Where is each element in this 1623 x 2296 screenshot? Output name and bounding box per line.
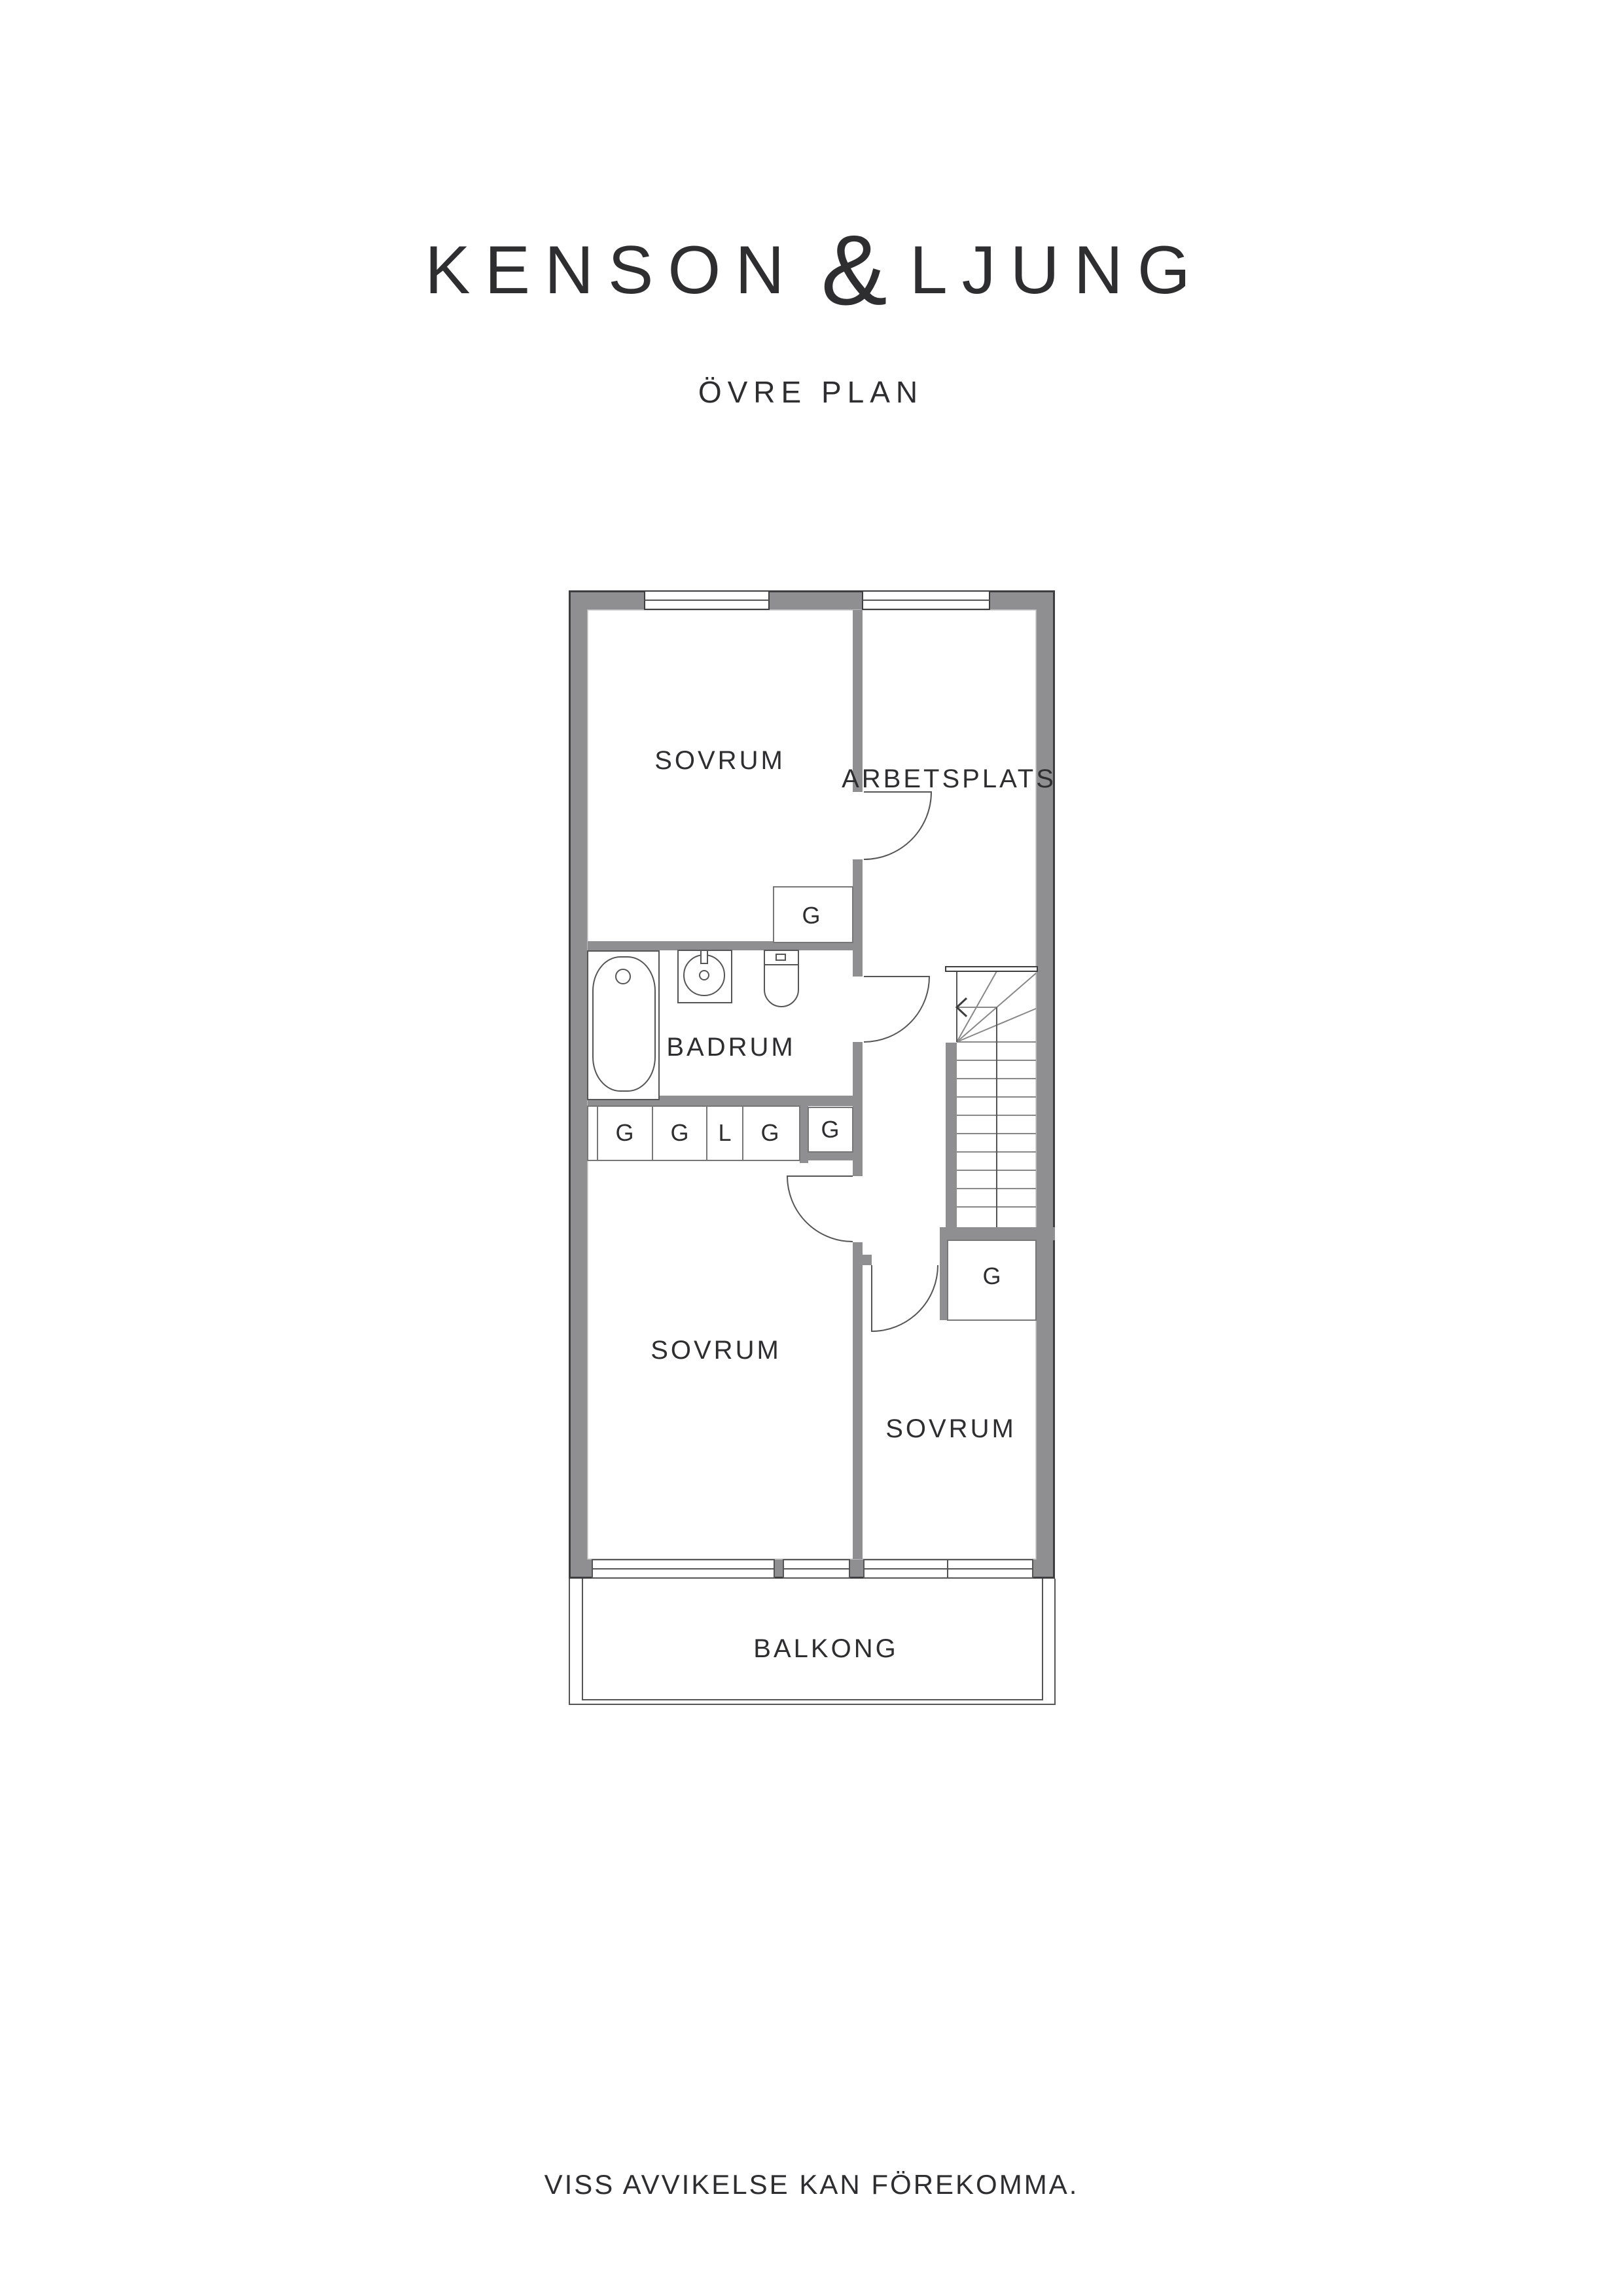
closet-label-row-3: L [718, 1121, 732, 1145]
closet-label-under-stairs: G [982, 1265, 1001, 1288]
door-sovrum-left [787, 1176, 853, 1242]
plan-subtitle: ÖVRE PLAN [698, 377, 923, 407]
door-arbetsplats [864, 792, 931, 859]
closet-label-row-2: G [670, 1121, 689, 1145]
room-label-balkong: BALKONG [753, 1636, 898, 1662]
room-label-arbetsplats: ARBETSPLATS [842, 766, 1056, 792]
bathroom-fixtures [588, 950, 798, 1100]
toilet [764, 950, 798, 1007]
balcony-doors-windows [592, 1560, 1033, 1578]
closet-label-row-1: G [615, 1121, 634, 1145]
floorplan-page: KENSON & LJUNG ÖVRE PLAN SOVRUM ARBETSPL… [0, 0, 1623, 2296]
brand-logo: KENSON & LJUNG [425, 221, 1205, 320]
closet-label-hall: G [821, 1118, 840, 1141]
brand-ampersand: & [821, 221, 887, 320]
room-label-badrum: BADRUM [666, 1034, 795, 1060]
door-badrum [864, 977, 929, 1042]
room-label-sovrum-left: SOVRUM [651, 1337, 781, 1363]
sink [678, 950, 732, 1003]
door-sovrum-right [872, 1265, 938, 1331]
brand-right: LJUNG [910, 236, 1205, 304]
stair-landing-edge [946, 967, 1037, 971]
floor-plan-svg [0, 0, 1623, 2296]
room-label-sovrum-top: SOVRUM [654, 747, 785, 774]
disclaimer-text: VISS AVVIKELSE KAN FÖREKOMMA. [544, 2171, 1079, 2198]
bathtub [588, 951, 659, 1100]
room-label-sovrum-right: SOVRUM [885, 1416, 1016, 1442]
brand-left: KENSON [425, 236, 798, 304]
staircase [946, 967, 1037, 1227]
closet-label-top: G [802, 904, 821, 927]
closet-label-row-4: G [760, 1121, 779, 1145]
